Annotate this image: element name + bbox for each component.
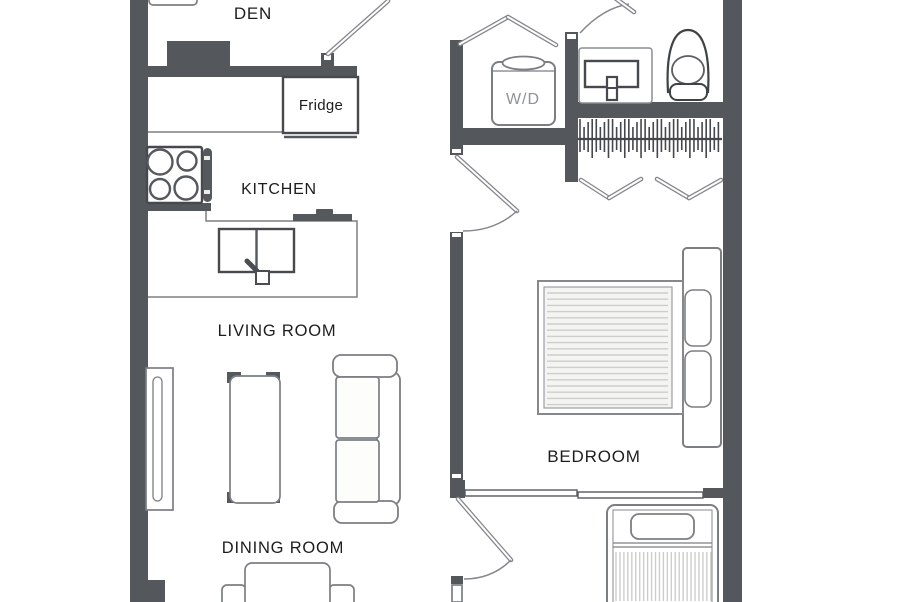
bathroom: [579, 0, 708, 103]
counter-appliance: [293, 214, 352, 221]
washer-dryer-label: W/D: [506, 91, 540, 108]
bifold-closet-doors: [581, 179, 721, 198]
bedroom-label: BEDROOM: [547, 447, 640, 466]
pillow-icon: [631, 514, 694, 539]
bedroom-closet: [578, 119, 722, 198]
double-bed-icon: [538, 248, 721, 447]
laundry-closet: W/D: [460, 17, 556, 125]
closet-hanger-ticks: [580, 119, 718, 158]
fridge-icon: Fridge: [283, 77, 358, 133]
single-bed-icon: [607, 505, 718, 602]
sliding-door-icon: [465, 490, 703, 498]
den-label: DEN: [234, 4, 272, 23]
kitchen-label: KITCHEN: [241, 181, 317, 198]
wall-slider-left-stub: [450, 480, 465, 498]
dining-chair-icon: [222, 585, 246, 602]
wall-thin-segment: [452, 585, 462, 602]
second-bedroom: [458, 499, 718, 602]
bedroom: BEDROOM: [457, 157, 721, 498]
wall-left-bottom-pillar: [148, 580, 165, 602]
tv-console-icon: [146, 368, 173, 510]
desk-icon: [149, 0, 197, 5]
bathroom-door-arc: [580, 4, 629, 33]
wall-laundry-bottom: [450, 128, 565, 145]
wall-bath-bottom: [578, 102, 723, 118]
dining-chair-icon: [329, 585, 354, 602]
wall-slider-right-stub: [703, 488, 723, 498]
dining-room-label: DINING ROOM: [222, 539, 344, 557]
wall-right: [723, 0, 742, 602]
toilet-icon: [668, 30, 709, 100]
kitchen: Fridge KITCHEN: [147, 77, 358, 297]
wall-bath-stub: [565, 32, 578, 182]
dining-room: DINING ROOM: [222, 539, 354, 602]
pillow-icon: [685, 290, 711, 346]
second-bedroom-door-arc: [464, 560, 511, 579]
floor-plan-page: DEN Fridge: [0, 0, 904, 602]
headboard-icon: [683, 248, 721, 447]
door-stop-lower: [451, 576, 463, 584]
wall-middle-lower: [450, 232, 463, 480]
sofa-icon: [333, 355, 400, 523]
coffee-table-icon: [227, 372, 280, 503]
floor-plan-drawing: DEN Fridge: [0, 0, 904, 602]
wall-kitchen-top: [148, 66, 357, 77]
stove-cooktop-icon: [147, 147, 212, 203]
pillow-icon: [685, 351, 711, 407]
living-room: LIVING ROOM: [146, 322, 400, 523]
bedroom-door-arc: [463, 211, 517, 231]
dining-table-icon: [245, 563, 330, 602]
wall-left: [130, 0, 148, 602]
double-basin-sink-icon: [219, 229, 294, 284]
wall-den-block: [167, 41, 230, 66]
fridge-label: Fridge: [299, 97, 343, 114]
bathroom-vanity-sink-icon: [579, 48, 652, 103]
living-room-label: LIVING ROOM: [218, 322, 337, 340]
washer-dryer-icon: W/D: [492, 57, 555, 126]
